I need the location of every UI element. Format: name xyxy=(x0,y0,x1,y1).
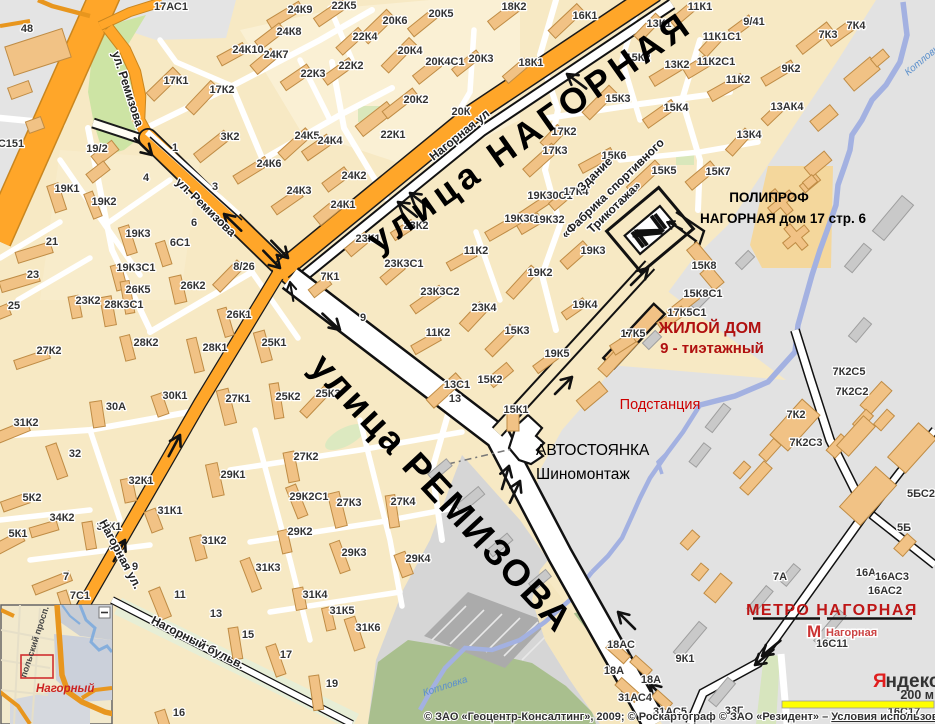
svg-text:5БС2: 5БС2 xyxy=(907,488,935,500)
svg-text:29К2: 29К2 xyxy=(287,526,312,538)
svg-text:27К4: 27К4 xyxy=(390,496,416,508)
svg-text:24К9: 24К9 xyxy=(287,4,312,16)
svg-text:13АК4: 13АК4 xyxy=(770,101,804,113)
svg-text:20К5: 20К5 xyxy=(428,8,453,20)
svg-text:3: 3 xyxy=(212,181,218,193)
svg-text:18А: 18А xyxy=(604,665,624,677)
svg-text:17К2: 17К2 xyxy=(209,84,234,96)
svg-text:26К2: 26К2 xyxy=(180,280,205,292)
svg-text:28К1: 28К1 xyxy=(202,342,227,354)
svg-text:С151: С151 xyxy=(0,138,24,150)
svg-text:29К2С1: 29К2С1 xyxy=(289,491,328,503)
svg-text:31К5: 31К5 xyxy=(329,605,354,617)
svg-text:11: 11 xyxy=(174,589,186,601)
svg-text:200 м: 200 м xyxy=(900,688,934,702)
svg-text:М: М xyxy=(807,622,821,641)
svg-text:9/41: 9/41 xyxy=(743,16,764,28)
svg-text:20К2: 20К2 xyxy=(403,94,428,106)
svg-text:17К5С1: 17К5С1 xyxy=(667,307,706,319)
svg-text:9К1: 9К1 xyxy=(676,653,695,665)
svg-text:НАГОРНАЯ дом 17 стр. 6: НАГОРНАЯ дом 17 стр. 6 xyxy=(700,211,866,226)
svg-text:3К2: 3К2 xyxy=(221,131,240,143)
svg-text:13К2: 13К2 xyxy=(664,59,689,71)
svg-text:15К7: 15К7 xyxy=(705,166,730,178)
svg-text:31К6: 31К6 xyxy=(355,622,380,634)
svg-text:7К3: 7К3 xyxy=(819,29,838,41)
svg-text:25К2: 25К2 xyxy=(275,391,300,403)
svg-text:24К1: 24К1 xyxy=(330,199,355,211)
svg-text:11К1С1: 11К1С1 xyxy=(703,31,742,43)
svg-text:7К2: 7К2 xyxy=(787,409,806,421)
svg-text:11К2: 11К2 xyxy=(464,245,488,257)
svg-text:32К1: 32К1 xyxy=(128,475,153,487)
svg-text:7С1: 7С1 xyxy=(70,590,90,602)
svg-text:20К4: 20К4 xyxy=(397,45,423,57)
svg-text:9 - тиэтажный: 9 - тиэтажный xyxy=(660,340,764,357)
svg-text:20К: 20К xyxy=(452,106,471,118)
svg-text:Шиномонтаж: Шиномонтаж xyxy=(536,466,630,483)
svg-text:19: 19 xyxy=(326,678,338,690)
svg-text:8/26: 8/26 xyxy=(233,261,254,273)
svg-text:23: 23 xyxy=(27,269,39,281)
svg-text:7К2С2: 7К2С2 xyxy=(835,386,868,398)
svg-text:11К2: 11К2 xyxy=(426,327,450,339)
svg-text:16АС2: 16АС2 xyxy=(868,585,902,597)
svg-text:32: 32 xyxy=(69,448,81,460)
svg-text:27К2: 27К2 xyxy=(36,345,61,357)
svg-text:31К2: 31К2 xyxy=(201,535,226,547)
svg-text:15К8: 15К8 xyxy=(691,260,716,272)
svg-text:23К2: 23К2 xyxy=(75,295,100,307)
svg-text:7К4: 7К4 xyxy=(847,20,867,32)
svg-text:17АС1: 17АС1 xyxy=(154,1,188,13)
svg-text:11К2С1: 11К2С1 xyxy=(697,56,736,68)
svg-text:18А: 18А xyxy=(641,674,661,686)
svg-text:19К2: 19К2 xyxy=(527,267,552,279)
svg-text:22К4: 22К4 xyxy=(352,31,378,43)
svg-text:19К5: 19К5 xyxy=(544,348,569,360)
svg-text:13: 13 xyxy=(210,608,222,620)
svg-text:24К2: 24К2 xyxy=(341,170,366,182)
svg-text:АВТОСТОЯНКА: АВТОСТОЯНКА xyxy=(536,442,650,459)
svg-text:6С1: 6С1 xyxy=(170,237,190,249)
svg-text:29К4: 29К4 xyxy=(405,553,431,565)
svg-text:20К4С1: 20К4С1 xyxy=(425,56,464,68)
svg-text:19К3С1: 19К3С1 xyxy=(116,262,155,274)
svg-text:27К3: 27К3 xyxy=(336,497,361,509)
svg-text:29К1: 29К1 xyxy=(220,469,245,481)
svg-text:13К4: 13К4 xyxy=(736,129,762,141)
svg-text:26К1: 26К1 xyxy=(226,309,251,321)
svg-text:27К2: 27К2 xyxy=(293,451,318,463)
svg-text:6: 6 xyxy=(191,217,197,229)
svg-text:22К3: 22К3 xyxy=(300,68,325,80)
svg-text:16АС3: 16АС3 xyxy=(875,571,909,583)
svg-text:© ЗАО «Геоцентр-Консалтинг», 2: © ЗАО «Геоцентр-Консалтинг», 2009; © Рос… xyxy=(424,711,935,723)
svg-text:30А: 30А xyxy=(106,401,126,413)
svg-text:МЕТРО НАГОРНАЯ: МЕТРО НАГОРНАЯ xyxy=(746,602,918,619)
svg-text:15К5: 15К5 xyxy=(651,165,676,177)
svg-text:15: 15 xyxy=(242,629,254,641)
svg-text:15К2: 15К2 xyxy=(477,374,502,386)
svg-text:4: 4 xyxy=(143,172,150,184)
svg-text:5К2: 5К2 xyxy=(23,492,42,504)
svg-text:31АС4: 31АС4 xyxy=(618,692,653,704)
svg-text:9К2: 9К2 xyxy=(782,63,801,75)
svg-text:25К1: 25К1 xyxy=(261,337,286,349)
svg-text:15К3: 15К3 xyxy=(504,325,529,337)
svg-text:9: 9 xyxy=(360,312,366,324)
svg-text:19К30: 19К30 xyxy=(504,213,535,225)
svg-text:19К3: 19К3 xyxy=(580,245,605,257)
svg-text:11К2: 11К2 xyxy=(726,74,750,86)
svg-text:15К8С1: 15К8С1 xyxy=(683,288,722,300)
svg-text:34К2: 34К2 xyxy=(49,512,74,524)
svg-text:24К5: 24К5 xyxy=(294,130,319,142)
svg-text:48: 48 xyxy=(21,23,33,35)
svg-text:19К1: 19К1 xyxy=(54,183,79,195)
svg-text:1: 1 xyxy=(172,142,178,154)
svg-text:31К3: 31К3 xyxy=(255,562,280,574)
svg-text:19/2: 19/2 xyxy=(86,143,107,155)
svg-text:ЖИЛОЙ ДОМ: ЖИЛОЙ ДОМ xyxy=(658,318,762,337)
svg-text:24К3: 24К3 xyxy=(286,185,311,197)
svg-text:16К1: 16К1 xyxy=(572,10,597,22)
svg-text:31К2: 31К2 xyxy=(13,417,38,429)
svg-text:5К1: 5К1 xyxy=(9,528,28,540)
svg-text:5Б: 5Б xyxy=(897,522,911,534)
svg-text:22К1: 22К1 xyxy=(380,129,405,141)
svg-text:11К1: 11К1 xyxy=(688,1,712,13)
svg-text:19К3: 19К3 xyxy=(125,228,150,240)
svg-text:17К1: 17К1 xyxy=(163,75,188,87)
svg-text:23К3С2: 23К3С2 xyxy=(420,286,459,298)
svg-text:28К3С1: 28К3С1 xyxy=(104,299,143,311)
svg-text:15К4: 15К4 xyxy=(663,102,689,114)
svg-text:26К5: 26К5 xyxy=(125,284,150,296)
svg-text:17К5: 17К5 xyxy=(620,328,645,340)
svg-text:7А: 7А xyxy=(773,571,787,583)
svg-text:19К2: 19К2 xyxy=(91,196,116,208)
svg-text:19К4: 19К4 xyxy=(572,299,598,311)
svg-text:24К7: 24К7 xyxy=(263,49,288,61)
svg-text:18АС: 18АС xyxy=(607,639,635,651)
svg-text:18К1: 18К1 xyxy=(518,57,543,69)
svg-text:20К6: 20К6 xyxy=(382,15,407,27)
svg-text:25: 25 xyxy=(8,300,20,312)
svg-text:24К8: 24К8 xyxy=(276,26,301,38)
svg-text:24К4: 24К4 xyxy=(317,135,343,147)
svg-text:Подстанция: Подстанция xyxy=(620,397,701,413)
svg-text:19К32: 19К32 xyxy=(533,214,564,226)
svg-text:7К2С5: 7К2С5 xyxy=(832,366,865,378)
svg-text:28К2: 28К2 xyxy=(133,337,158,349)
svg-text:23К3С1: 23К3С1 xyxy=(384,258,423,270)
svg-text:7: 7 xyxy=(63,571,69,583)
svg-text:24К6: 24К6 xyxy=(256,158,281,170)
svg-text:30К1: 30К1 xyxy=(162,390,187,402)
svg-text:23К4: 23К4 xyxy=(471,302,497,314)
svg-text:29К3: 29К3 xyxy=(341,547,366,559)
svg-text:17К3: 17К3 xyxy=(542,145,567,157)
svg-text:21: 21 xyxy=(46,236,58,248)
svg-text:18К2: 18К2 xyxy=(501,1,526,13)
svg-text:27К1: 27К1 xyxy=(225,393,250,405)
svg-text:22К5: 22К5 xyxy=(331,0,356,12)
svg-text:24К10: 24К10 xyxy=(232,44,263,56)
svg-text:7К2С3: 7К2С3 xyxy=(789,437,822,449)
svg-text:31К4: 31К4 xyxy=(302,589,328,601)
svg-text:22К2: 22К2 xyxy=(338,60,363,72)
svg-text:16А: 16А xyxy=(856,567,876,579)
svg-text:ПОЛИПРОФ: ПОЛИПРОФ xyxy=(729,190,809,205)
svg-text:16: 16 xyxy=(173,707,185,719)
svg-text:15К1: 15К1 xyxy=(503,404,528,416)
svg-text:31К1: 31К1 xyxy=(157,505,182,517)
svg-text:20К3: 20К3 xyxy=(468,53,493,65)
svg-text:17: 17 xyxy=(280,649,292,661)
svg-text:7К1: 7К1 xyxy=(321,271,340,283)
svg-text:13С1: 13С1 xyxy=(444,379,470,391)
svg-text:13: 13 xyxy=(449,393,461,405)
svg-text:Нагорная: Нагорная xyxy=(826,627,877,639)
svg-text:Нагорный: Нагорный xyxy=(36,683,94,695)
